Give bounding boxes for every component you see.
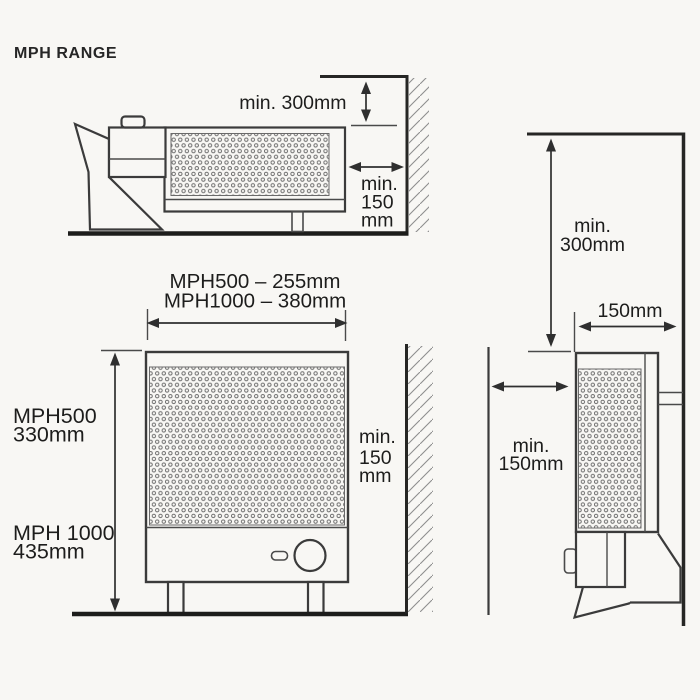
depth-label: 150mm — [597, 300, 662, 322]
heater-grille — [171, 134, 329, 196]
clearance-above-label: min. 300mm — [239, 92, 346, 114]
installation-diagram-page: MPH RANGE min. 300mm min. 150 mm MPH500 … — [0, 0, 700, 700]
page-title: MPH RANGE — [14, 45, 117, 62]
heater-grille — [150, 367, 345, 525]
wall-hatching — [409, 78, 429, 232]
clearance-side-label-3: mm — [361, 210, 394, 232]
left-leg — [168, 582, 184, 613]
right-leg — [308, 582, 324, 613]
heater-grille — [579, 369, 642, 528]
wall-hatching — [408, 346, 433, 612]
width-spec-mph1000: MPH1000 – 380mm — [164, 290, 346, 313]
clearance-above-label-2: 300mm — [560, 234, 625, 256]
heat-exchanger-box — [109, 128, 166, 178]
installation-diagram: MPH RANGE min. 300mm min. 150 mm MPH500 … — [0, 0, 700, 700]
clearance-side-label-3: mm — [359, 465, 392, 487]
height-label-mph1000-value: 435mm — [13, 540, 85, 564]
clearance-front-label-2: 150mm — [498, 453, 563, 475]
lower-housing — [576, 532, 625, 587]
control-knob — [295, 540, 326, 571]
height-label-mph500-value: 330mm — [13, 423, 85, 447]
clearance-side-label-1: min. — [359, 426, 396, 448]
top-knob — [122, 117, 145, 128]
